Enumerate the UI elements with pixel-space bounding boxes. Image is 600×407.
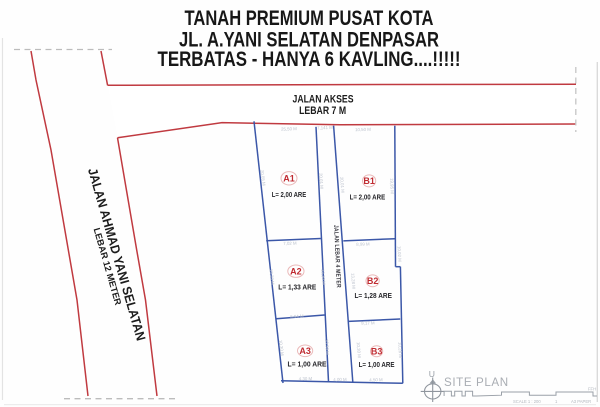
svg-text:SITE PLAN: SITE PLAN [444, 376, 509, 389]
svg-text:L= 1,33 ARE: L= 1,33 ARE [278, 282, 316, 291]
svg-text:B2: B2 [367, 276, 379, 286]
svg-text:7,02 M: 7,02 M [283, 241, 297, 246]
svg-text:6,94 M: 6,94 M [290, 313, 304, 319]
svg-text:25,50 M: 25,50 M [281, 126, 297, 132]
svg-text:L= 1,28 ARE: L= 1,28 ARE [354, 291, 392, 300]
svg-text:U: U [429, 369, 435, 379]
svg-text:4,00 M: 4,00 M [333, 377, 347, 382]
svg-text:SCALE 1 : 200: SCALE 1 : 200 [513, 399, 541, 404]
svg-text:B3: B3 [371, 346, 383, 356]
svg-text:4,30 M: 4,30 M [299, 376, 313, 381]
svg-text:4,50 M: 4,50 M [369, 377, 383, 382]
svg-text:10,02 M: 10,02 M [397, 246, 403, 262]
svg-text:TERBATAS - HANYA 6 KAVLING....: TERBATAS - HANYA 6 KAVLING....!!!!! [158, 48, 461, 71]
svg-text:JALAN AKSES: JALAN AKSES [293, 94, 354, 106]
svg-text:A3 PAPER: A3 PAPER [571, 399, 591, 404]
svg-text:L= 1,00 ARE: L= 1,00 ARE [359, 360, 395, 369]
svg-text:10,50 M: 10,50 M [355, 127, 371, 132]
svg-text:TANAH PREMIUM PUSAT KOTA: TANAH PREMIUM PUSAT KOTA [185, 7, 434, 30]
svg-text:A3: A3 [299, 346, 311, 356]
svg-text:7,141 M: 7,141 M [317, 125, 333, 131]
svg-text:B1: B1 [363, 176, 375, 186]
svg-text:L= 2,00 ARE: L= 2,00 ARE [350, 193, 386, 202]
svg-text:A2: A2 [290, 266, 302, 276]
svg-text:FFH: FFH [588, 387, 596, 392]
svg-text:L= 1,00 ARE: L= 1,00 ARE [288, 359, 327, 368]
svg-text:19,95 M: 19,95 M [389, 178, 395, 194]
svg-text:9,17 M: 9,17 M [361, 320, 375, 325]
svg-text:10,30 M: 10,30 M [324, 339, 330, 355]
svg-text:LEBAR 7 M: LEBAR 7 M [299, 105, 346, 117]
svg-text:A1: A1 [283, 174, 295, 184]
svg-text:L= 2,00 ARE: L= 2,00 ARE [272, 190, 307, 199]
svg-text:8,99 M: 8,99 M [356, 241, 370, 246]
svg-text:10,28 M: 10,28 M [397, 342, 403, 358]
